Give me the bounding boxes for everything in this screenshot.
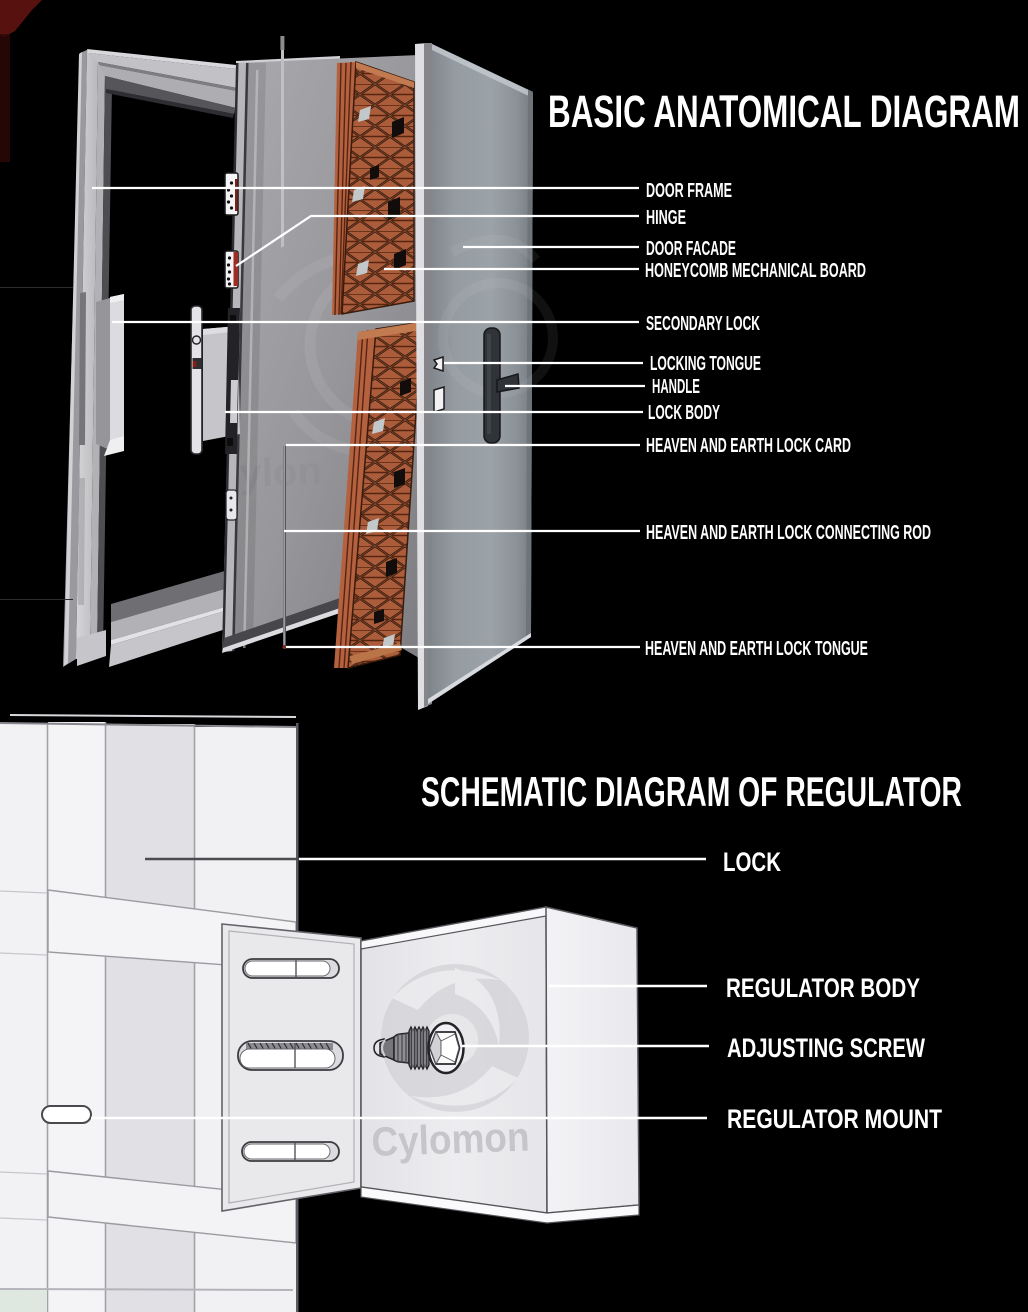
svg-text:ADJUSTING SCREW: ADJUSTING SCREW xyxy=(727,1033,925,1063)
svg-text:REGULATOR BODY: REGULATOR BODY xyxy=(726,973,920,1003)
svg-text:LOCK: LOCK xyxy=(723,847,781,877)
svg-text:HEAVEN AND EARTH LOCK CONNECTI: HEAVEN AND EARTH LOCK CONNECTING ROD xyxy=(646,522,931,544)
svg-text:LOCK BODY: LOCK BODY xyxy=(648,402,720,424)
svg-text:Cylomon: Cylomon xyxy=(371,1114,531,1165)
svg-text:HEAVEN AND EARTH LOCK TONGUE: HEAVEN AND EARTH LOCK TONGUE xyxy=(645,638,868,660)
svg-text:HONEYCOMB MECHANICAL BOARD: HONEYCOMB MECHANICAL BOARD xyxy=(645,260,866,282)
svg-text:REGULATOR MOUNT: REGULATOR MOUNT xyxy=(727,1104,942,1134)
svg-text:SECONDARY LOCK: SECONDARY LOCK xyxy=(646,313,760,335)
svg-text:DOOR FRAME: DOOR FRAME xyxy=(646,180,732,202)
svg-text:HANDLE: HANDLE xyxy=(652,376,700,398)
svg-text:HEAVEN AND EARTH LOCK CARD: HEAVEN AND EARTH LOCK CARD xyxy=(646,435,851,457)
svg-text:HINGE: HINGE xyxy=(646,207,686,229)
svg-text:LOCKING TONGUE: LOCKING TONGUE xyxy=(650,353,761,375)
svg-text:BASIC ANATOMICAL DIAGRAM: BASIC ANATOMICAL DIAGRAM xyxy=(548,86,1020,137)
svg-text:DOOR FACADE: DOOR FACADE xyxy=(646,238,736,260)
svg-text:SCHEMATIC DIAGRAM OF REGULATOR: SCHEMATIC DIAGRAM OF REGULATOR xyxy=(421,768,962,815)
